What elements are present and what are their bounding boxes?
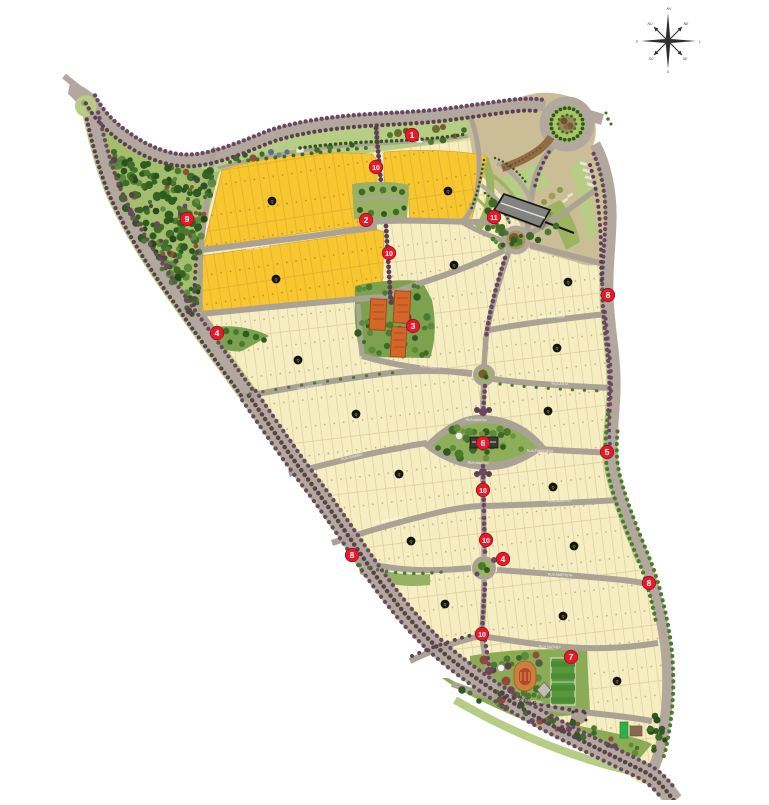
svg-text:Q: Q <box>444 602 447 606</box>
svg-text:Q: Q <box>410 539 413 543</box>
svg-text:Q: Q <box>562 614 565 618</box>
svg-text:NE: NE <box>684 22 689 26</box>
svg-text:9: 9 <box>185 214 190 224</box>
svg-text:RUA VIATNEY: RUA VIATNEY <box>539 645 562 650</box>
svg-text:SO: SO <box>649 57 654 61</box>
svg-text:Q: Q <box>398 472 401 476</box>
svg-text:10: 10 <box>385 251 393 258</box>
svg-text:Q: Q <box>567 280 570 284</box>
svg-text:SE: SE <box>683 57 688 61</box>
svg-text:7: 7 <box>569 652 574 662</box>
svg-text:4: 4 <box>501 554 506 564</box>
svg-text:RUA TURQUEZA: RUA TURQUEZA <box>527 449 554 453</box>
svg-text:Q: Q <box>556 346 559 350</box>
svg-text:1: 1 <box>410 130 415 140</box>
svg-text:2: 2 <box>364 215 369 225</box>
svg-text:Q: Q <box>573 544 576 548</box>
svg-text:Q: Q <box>616 679 619 683</box>
svg-text:Q: Q <box>547 409 550 413</box>
svg-text:11: 11 <box>490 215 498 222</box>
svg-text:RUA MARTIN: RUA MARTIN <box>468 461 490 466</box>
svg-text:4: 4 <box>215 328 220 338</box>
svg-text:Q: Q <box>297 358 300 362</box>
svg-text:10: 10 <box>479 488 487 495</box>
svg-text:10: 10 <box>478 632 486 639</box>
svg-text:RUA ATLIA: RUA ATLIA <box>552 382 570 387</box>
svg-text:NV: NV <box>667 7 672 11</box>
svg-text:10: 10 <box>372 165 380 172</box>
svg-text:5: 5 <box>605 447 610 457</box>
svg-text:RUA AMBERLY: RUA AMBERLY <box>548 499 572 503</box>
svg-text:Q: Q <box>271 199 274 203</box>
svg-text:Q: Q <box>447 189 450 193</box>
svg-text:RUA MARTIN: RUA MARTIN <box>466 418 488 423</box>
svg-text:Q: Q <box>355 412 358 416</box>
svg-text:6: 6 <box>481 438 486 448</box>
svg-text:8: 8 <box>647 578 652 588</box>
svg-text:8: 8 <box>350 550 355 560</box>
svg-text:8: 8 <box>606 290 611 300</box>
svg-text:L: L <box>699 40 701 44</box>
svg-text:Q: Q <box>453 263 456 267</box>
svg-text:3: 3 <box>411 321 416 331</box>
svg-text:10: 10 <box>482 538 490 545</box>
svg-text:NO: NO <box>647 22 652 26</box>
svg-text:Q: Q <box>552 485 555 489</box>
svg-text:Q: Q <box>275 277 278 281</box>
